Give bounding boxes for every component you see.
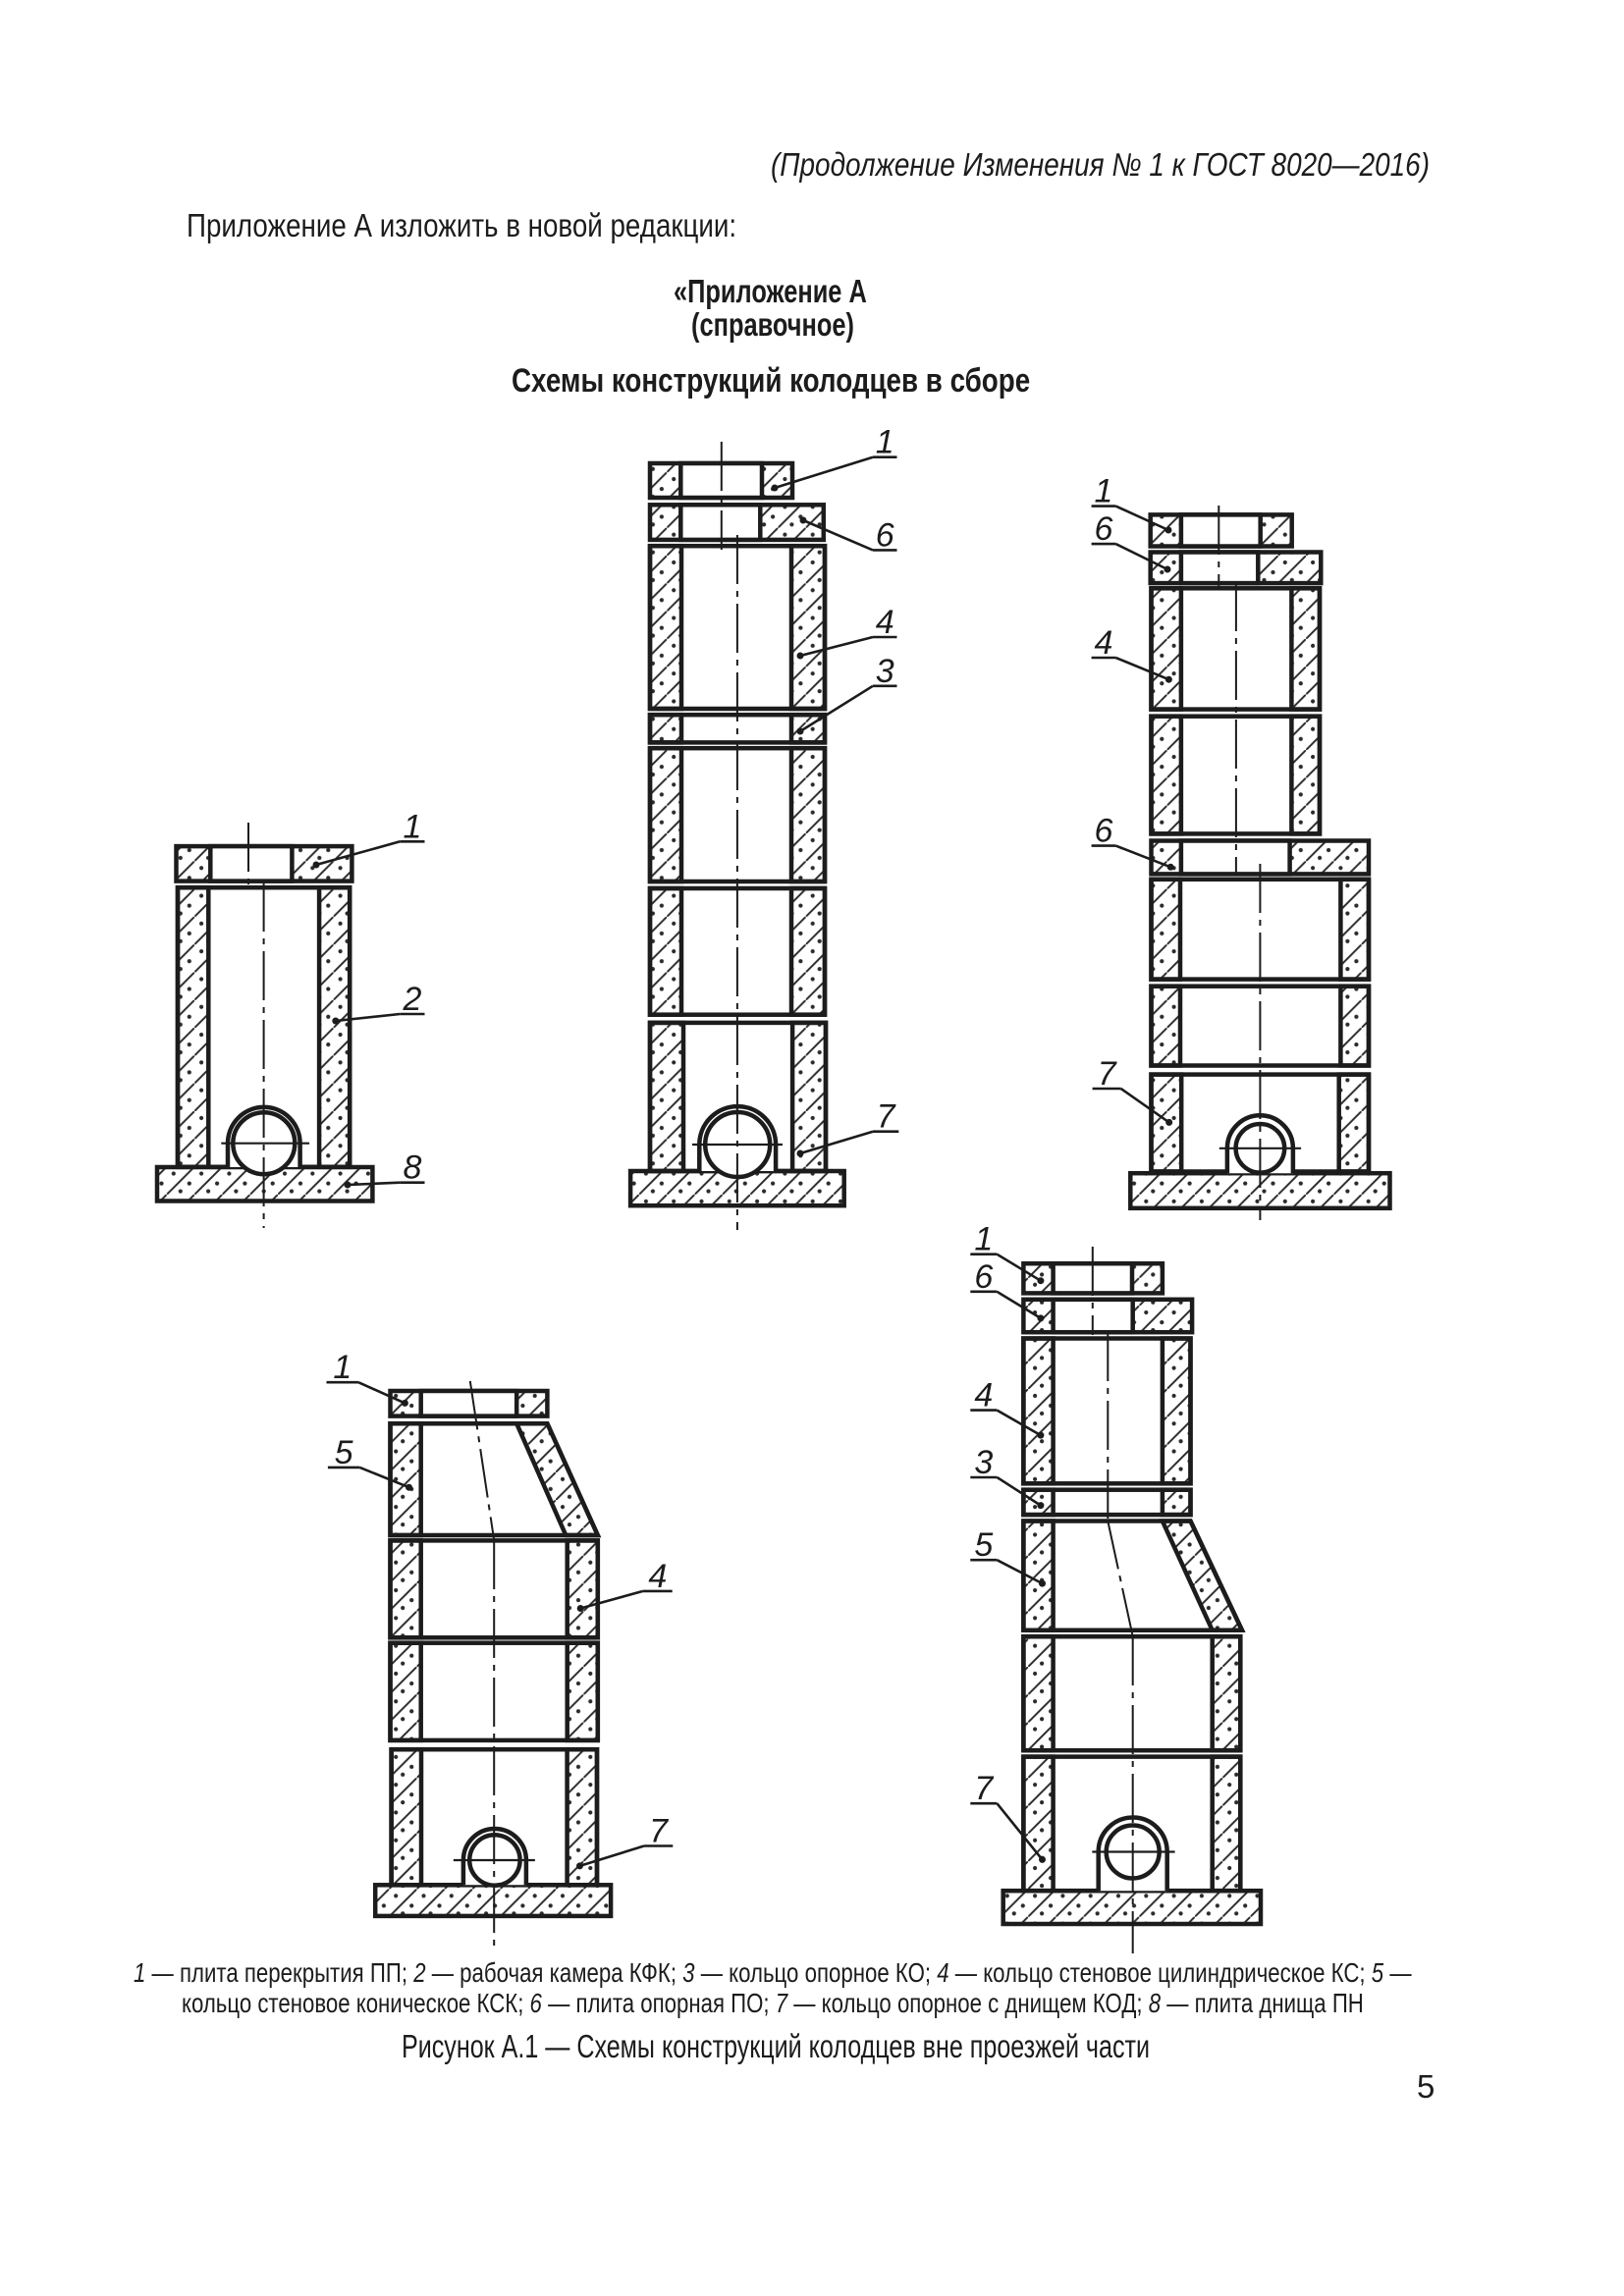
svg-text:2: 2 bbox=[402, 981, 421, 1018]
svg-text:4: 4 bbox=[648, 1558, 667, 1595]
svg-text:3: 3 bbox=[974, 1444, 993, 1481]
svg-text:8: 8 bbox=[403, 1149, 421, 1187]
svg-text:5: 5 bbox=[335, 1434, 353, 1471]
svg-text:1: 1 bbox=[974, 1221, 993, 1258]
svg-text:7: 7 bbox=[649, 1813, 669, 1850]
svg-text:6: 6 bbox=[974, 1258, 993, 1296]
svg-text:5: 5 bbox=[974, 1526, 993, 1564]
svg-text:6: 6 bbox=[876, 516, 894, 554]
svg-text:1: 1 bbox=[876, 424, 894, 461]
svg-text:6: 6 bbox=[1095, 813, 1113, 850]
svg-text:7: 7 bbox=[1098, 1055, 1117, 1093]
svg-text:6: 6 bbox=[1095, 510, 1113, 548]
svg-text:4: 4 bbox=[876, 604, 894, 641]
svg-text:1: 1 bbox=[403, 808, 421, 845]
svg-text:1: 1 bbox=[333, 1349, 352, 1386]
svg-text:7: 7 bbox=[974, 1770, 994, 1807]
svg-text:4: 4 bbox=[1095, 624, 1113, 662]
svg-text:1: 1 bbox=[1095, 473, 1113, 510]
svg-text:7: 7 bbox=[877, 1098, 896, 1136]
svg-text:4: 4 bbox=[974, 1377, 993, 1415]
svg-text:3: 3 bbox=[876, 653, 894, 690]
